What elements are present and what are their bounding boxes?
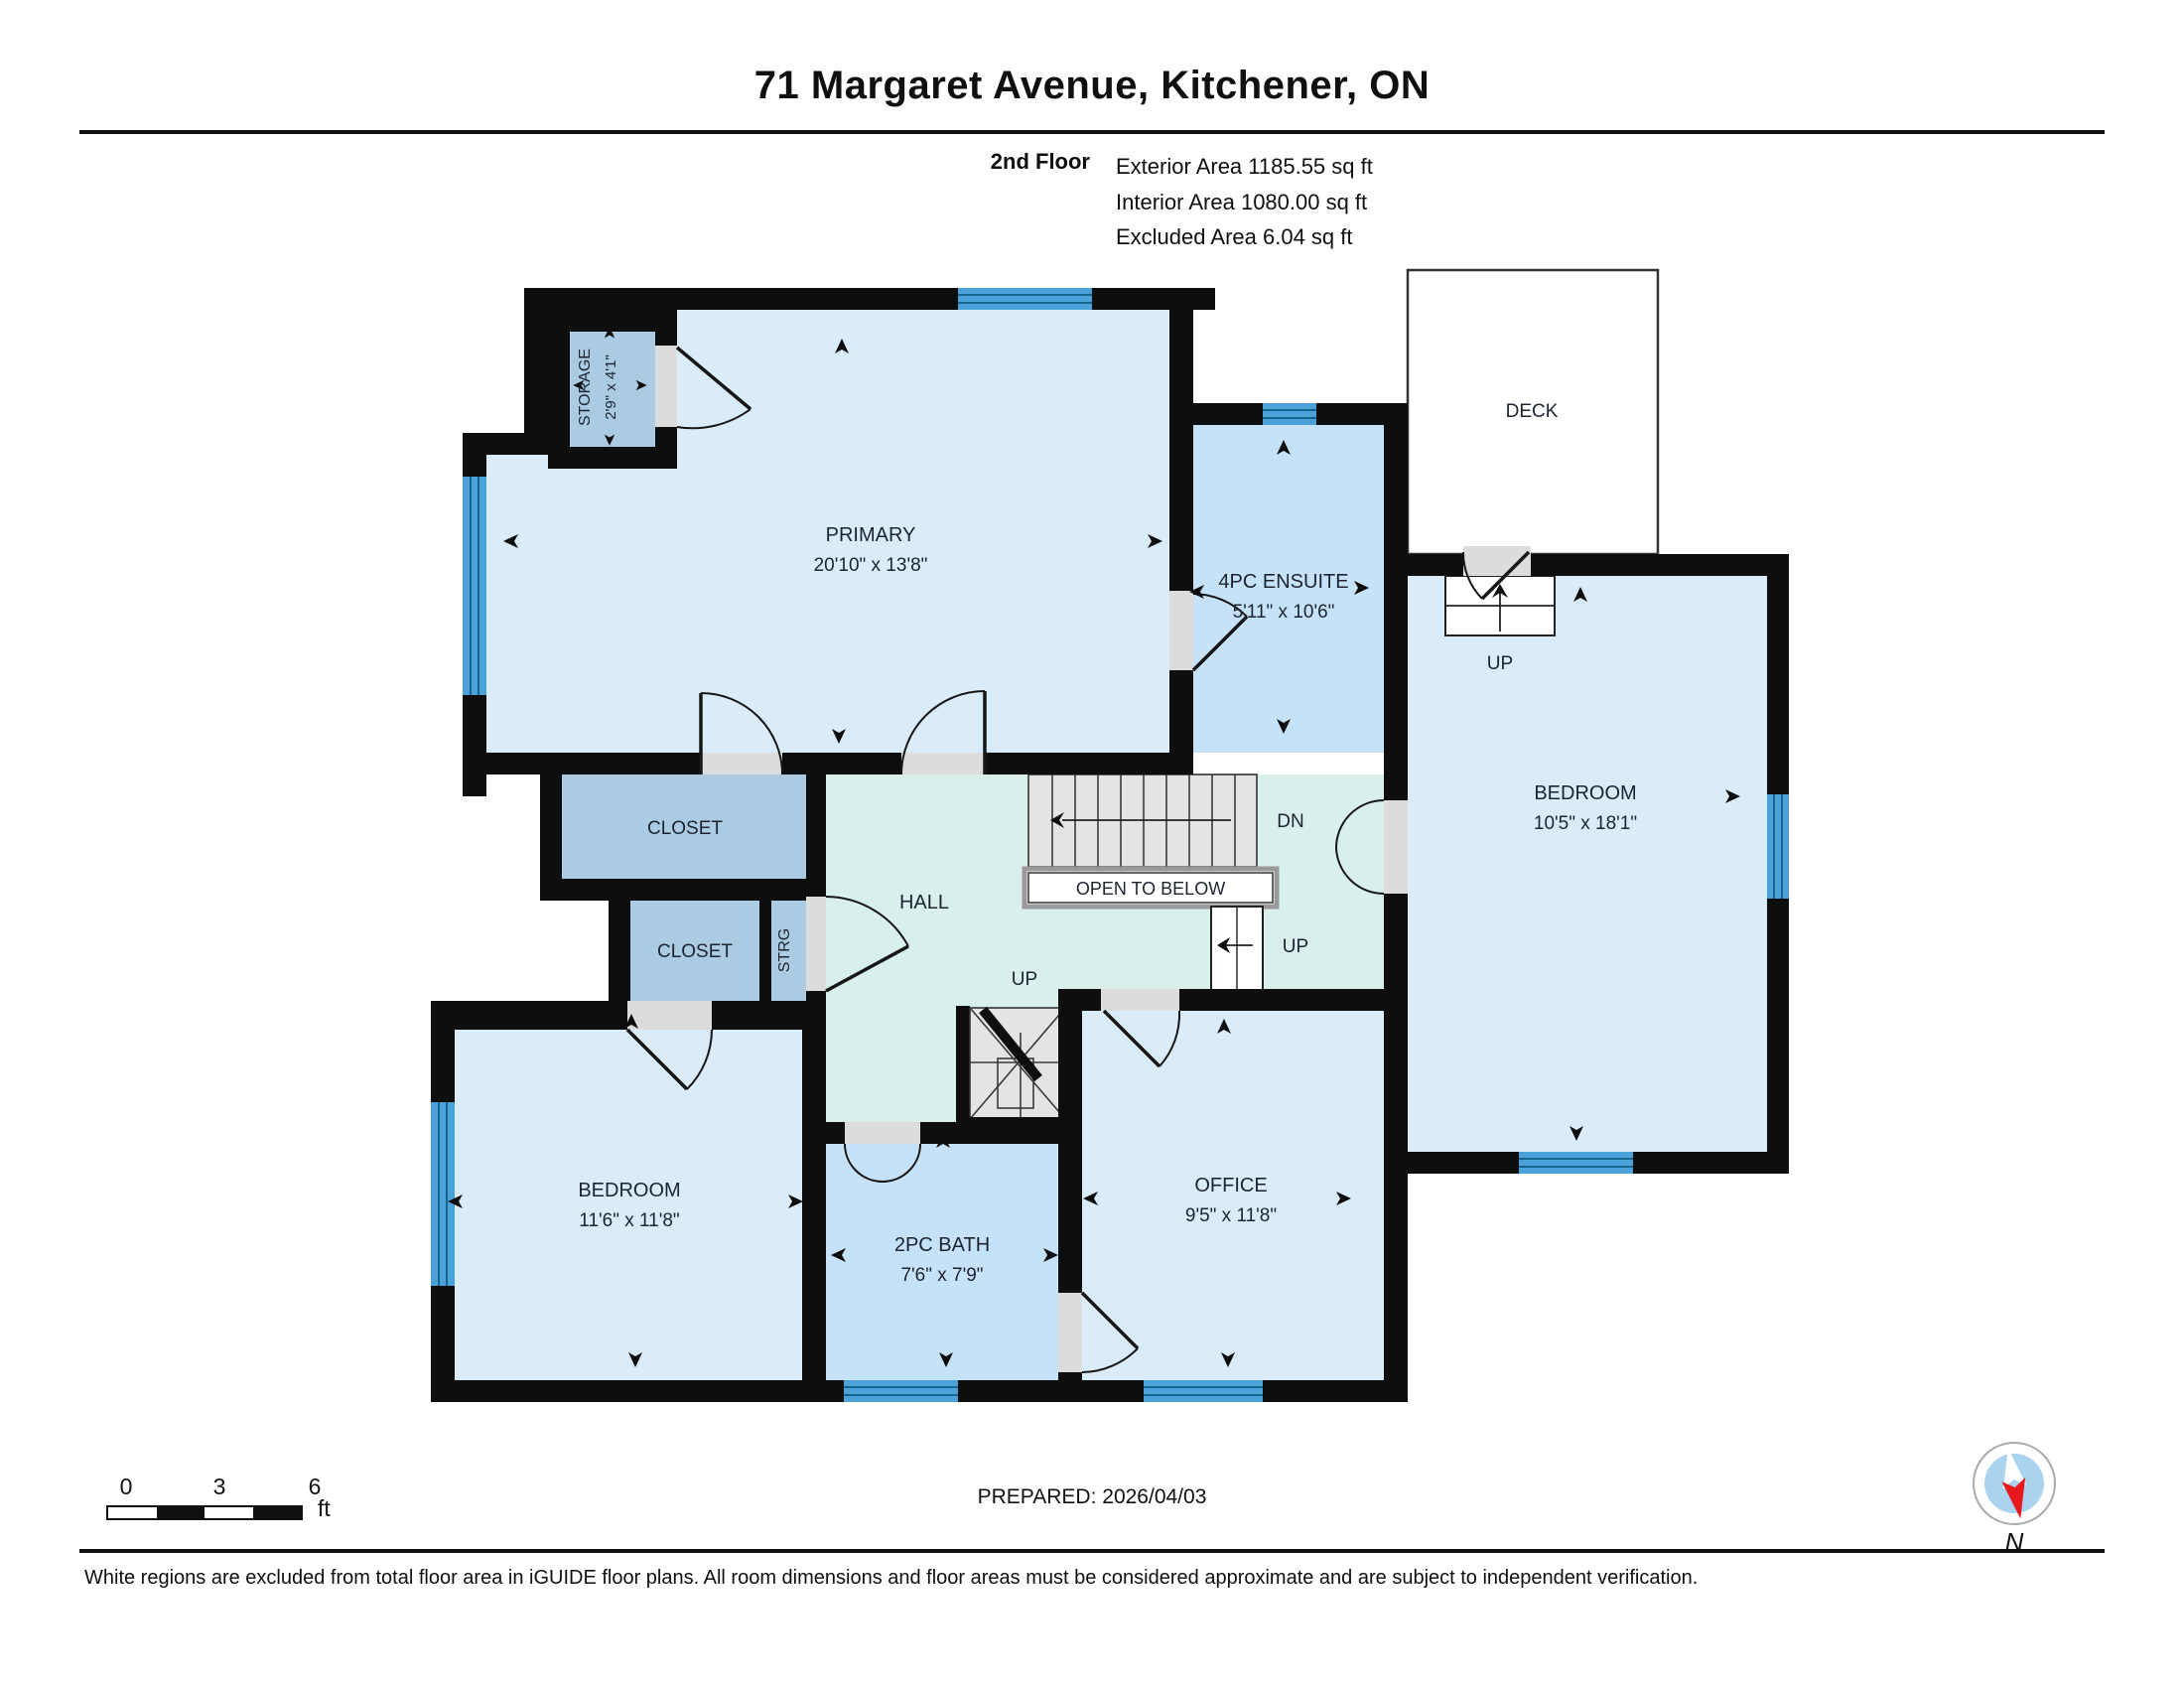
room-label-bedroom-left: BEDROOM: [578, 1180, 680, 1201]
dn-label: DN: [1277, 811, 1303, 832]
room-dims-ensuite: 5'11" x 10'6": [1233, 602, 1335, 623]
up-label-mid: UP: [1283, 936, 1308, 957]
room-dims-primary: 20'10" x 13'8": [814, 555, 928, 576]
disclaimer-text: White regions are excluded from total fl…: [84, 1567, 2100, 1590]
up-label-deck-stairs: UP: [1487, 653, 1513, 674]
room-label-bath: 2PC BATH: [894, 1234, 990, 1256]
bedroom-left-area: [455, 1030, 802, 1380]
room-dims-office: 9'5" x 11'8": [1185, 1205, 1277, 1226]
room-label-bedroom-right: BEDROOM: [1534, 782, 1636, 804]
up-label-winder: UP: [1012, 969, 1037, 990]
room-dims-bath: 7'6" x 7'9": [900, 1265, 983, 1286]
prepared-date: PREPARED: 2026/04/03: [0, 1485, 2184, 1509]
bedroom-right-area: [1408, 576, 1767, 1152]
footer-divider: [79, 1549, 2105, 1553]
room-label-primary: PRIMARY: [826, 524, 916, 546]
room-label-storage: STORAGE: [577, 349, 594, 426]
room-dims-bedroom-left: 11'6" x 11'8": [579, 1210, 679, 1231]
open-to-below-label: OPEN TO BELOW: [1076, 879, 1225, 899]
floorplan-page: 71 Margaret Avenue, Kitchener, ON 2nd Fl…: [0, 0, 2184, 1688]
compass: N: [1952, 1426, 2077, 1557]
room-label-closet-top: CLOSET: [647, 818, 723, 839]
room-label-hall: HALL: [899, 892, 949, 914]
bath-area: [826, 1142, 1058, 1380]
room-dims-bedroom-right: 10'5" x 18'1": [1534, 813, 1637, 834]
room-label-strg: STRG: [776, 928, 793, 972]
room-label-ensuite: 4PC ENSUITE: [1218, 571, 1348, 593]
room-label-office: OFFICE: [1194, 1175, 1267, 1196]
floor-plan: PRIMARY 20'10" x 13'8" STORAGE 2'9" x 4'…: [0, 0, 2184, 1688]
room-label-deck: DECK: [1506, 401, 1559, 422]
room-label-closet-bottom: CLOSET: [657, 941, 733, 962]
room-dims-storage: 2'9" x 4'1": [603, 354, 619, 420]
up-landing: [1445, 576, 1555, 635]
